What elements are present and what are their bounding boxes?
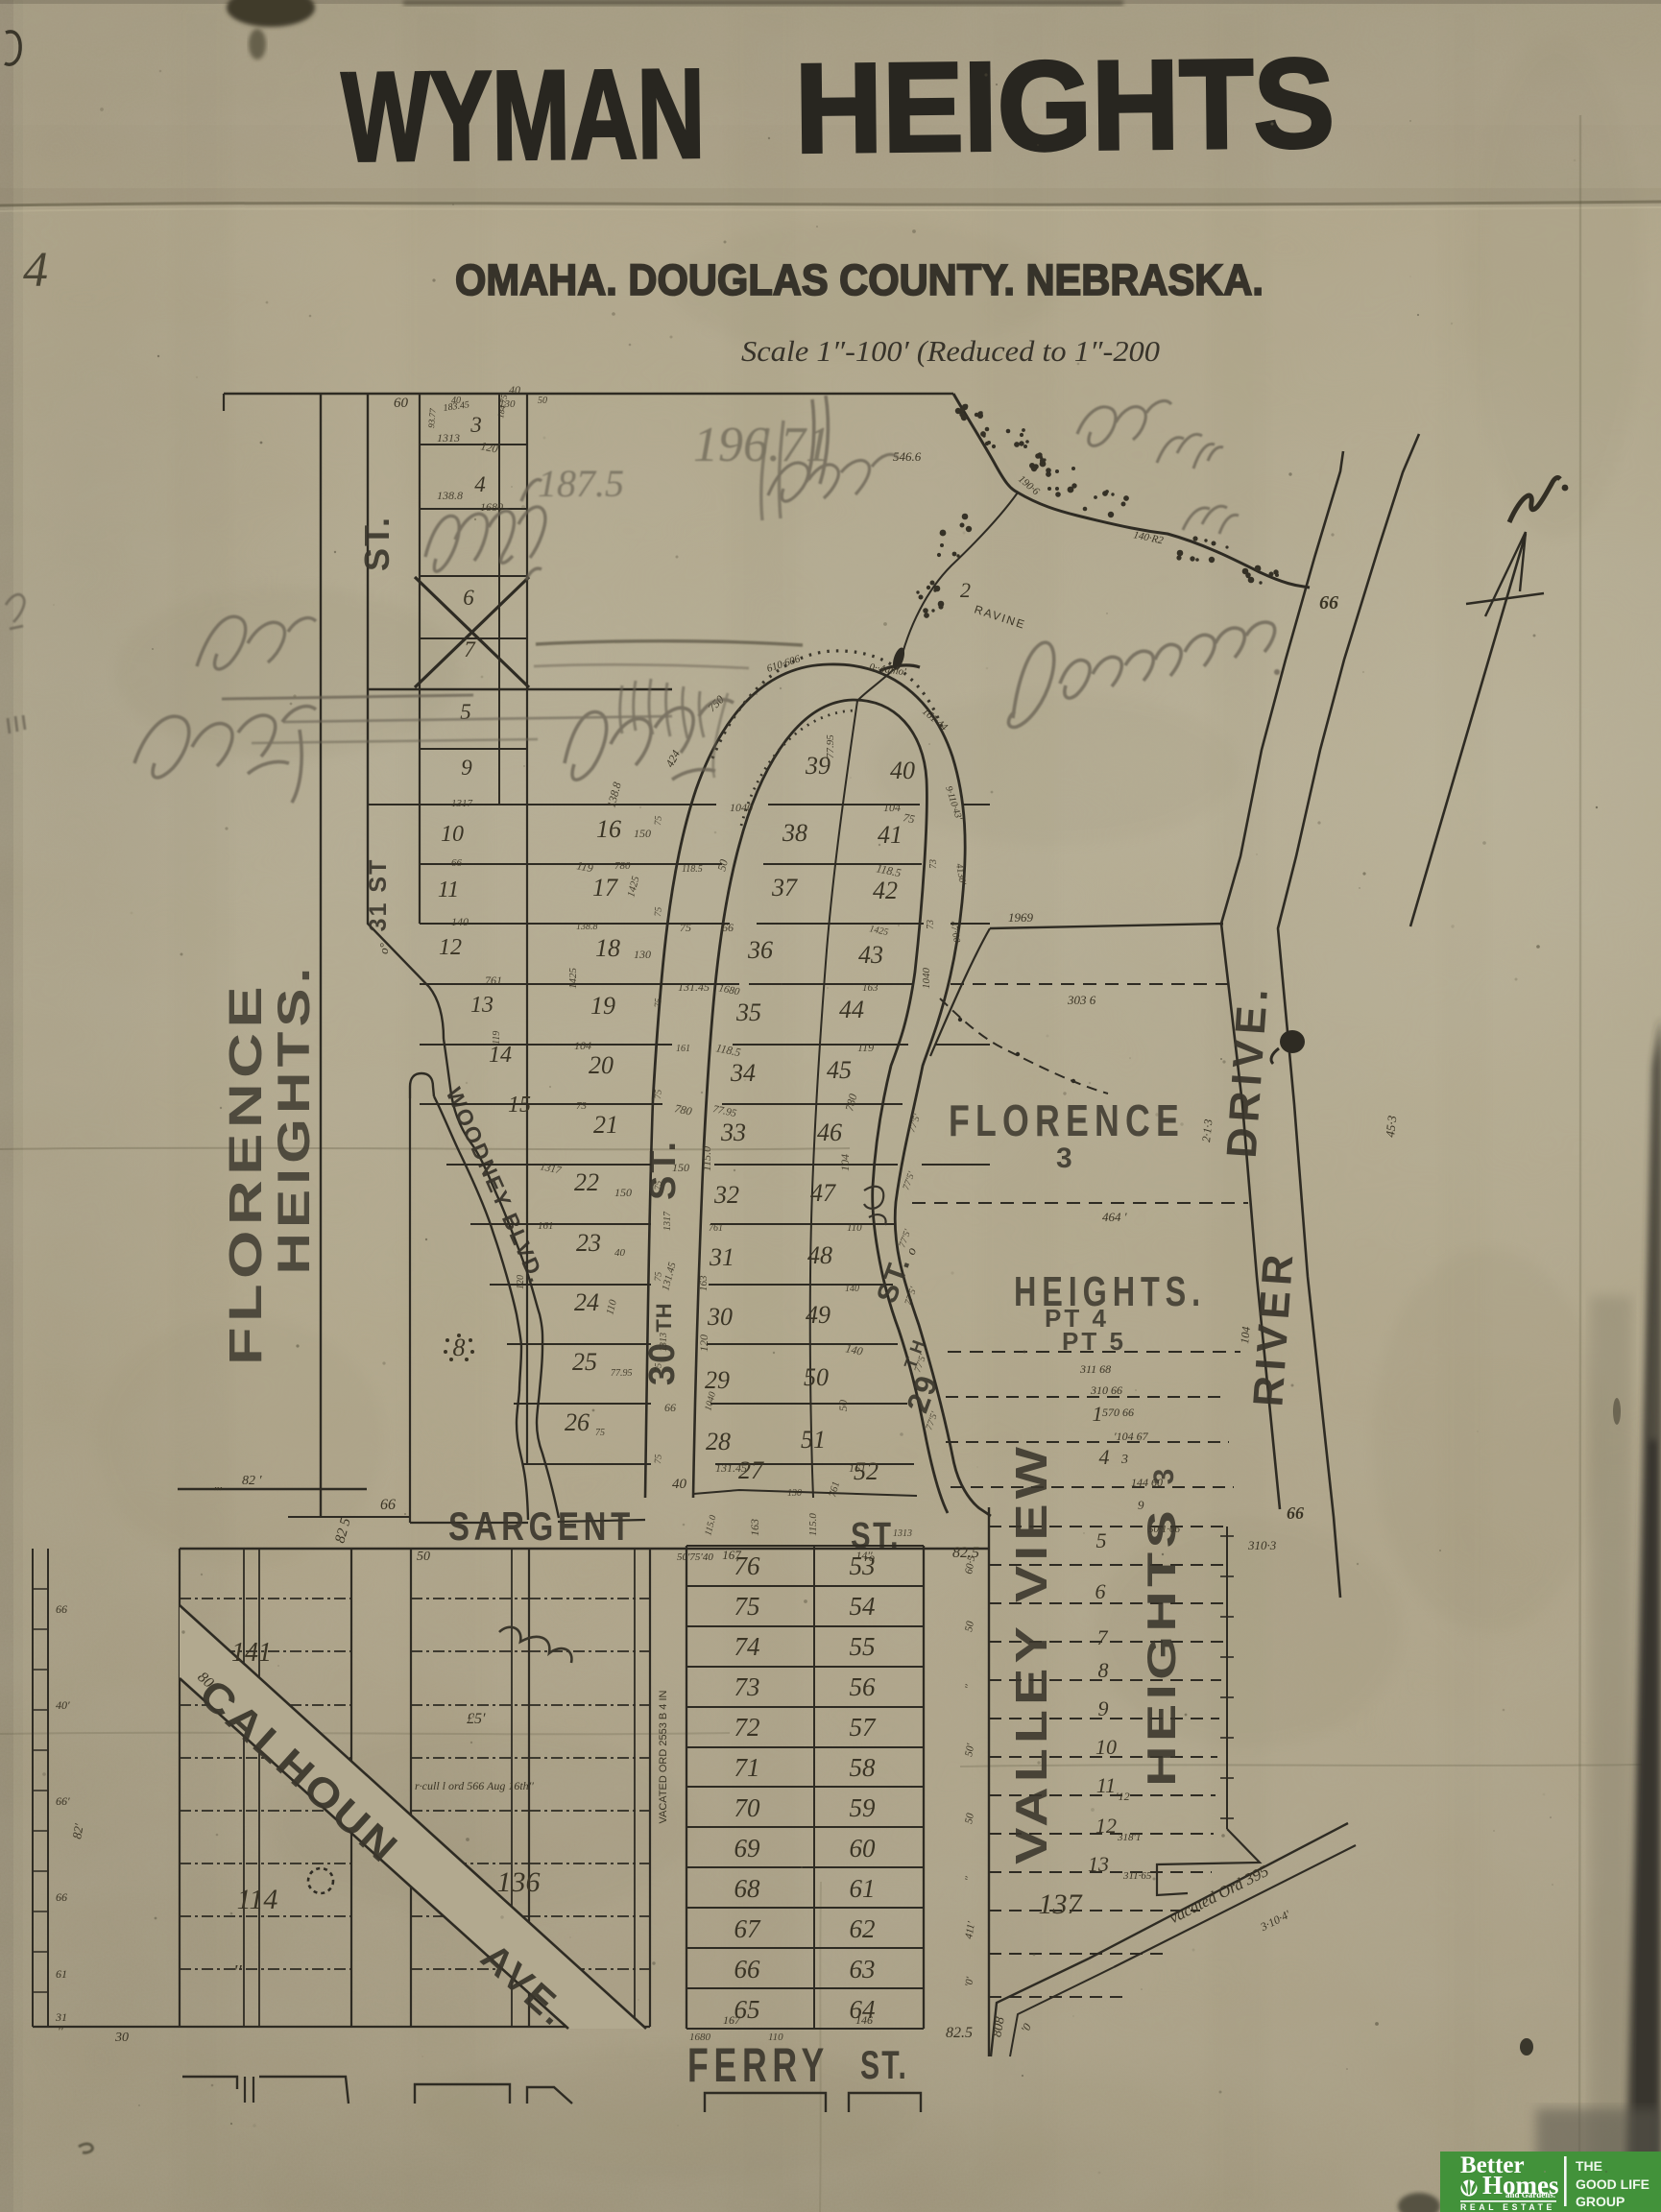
svg-text:104: 104 [838, 1154, 852, 1171]
svg-text:4: 4 [474, 472, 486, 496]
svg-text:4: 4 [1099, 1445, 1110, 1469]
svg-text:32: 32 [713, 1181, 739, 1209]
svg-text:73: 73 [928, 859, 939, 869]
svg-text:73: 73 [734, 1672, 760, 1701]
svg-text:34: 34 [730, 1059, 756, 1087]
svg-text:TH: TH [652, 1302, 676, 1332]
svg-text:60: 60 [394, 396, 409, 411]
svg-text:GOOD LIFE: GOOD LIFE [1576, 2176, 1649, 2192]
svg-text:19: 19 [590, 992, 615, 1020]
svg-text:75: 75 [653, 906, 664, 917]
svg-text:75: 75 [653, 1362, 664, 1373]
svg-text:140: 140 [451, 915, 469, 928]
svg-text:1313: 1313 [437, 431, 460, 445]
svg-text:137: 137 [1039, 1888, 1084, 1920]
svg-text:3: 3 [1120, 1453, 1128, 1467]
svg-text:WYMAN: WYMAN [341, 42, 706, 187]
svg-text:22: 22 [574, 1168, 599, 1196]
svg-text:161: 161 [849, 1461, 866, 1475]
svg-text:HEIGHTS.: HEIGHTS. [1014, 1268, 1206, 1315]
svg-text:20: 20 [589, 1051, 614, 1079]
svg-text:28: 28 [706, 1428, 731, 1455]
svg-text:130: 130 [634, 948, 651, 961]
svg-text:Scale 1″-100′ (Reduced to 1″-: Scale 1″-100′ (Reduced to 1″-200 [741, 334, 1161, 368]
svg-text:77.95: 77.95 [611, 1368, 633, 1379]
svg-text:5: 5 [1096, 1528, 1107, 1552]
svg-text:24: 24 [574, 1288, 599, 1316]
svg-text:163: 163 [862, 982, 879, 994]
svg-text:146: 146 [855, 2013, 873, 2027]
svg-text:69: 69 [734, 1834, 761, 1863]
svg-text:OMAHA. DOUGLAS COUNTY. NEBRASK: OMAHA. DOUGLAS COUNTY. NEBRASKA. [455, 255, 1264, 304]
svg-text:1425: 1425 [567, 968, 579, 990]
svg-text:1313: 1313 [659, 1333, 669, 1352]
svg-text:3: 3 [469, 413, 482, 437]
svg-text:119: 119 [857, 1041, 874, 1054]
svg-text:187.5: 187.5 [538, 462, 624, 505]
svg-text:58: 58 [850, 1753, 877, 1782]
svg-text:45: 45 [827, 1056, 852, 1084]
svg-text:51: 51 [801, 1426, 826, 1454]
svg-text:59: 59 [850, 1793, 877, 1822]
svg-text:761: 761 [709, 1223, 723, 1234]
svg-text:GROUP: GROUP [1576, 2194, 1625, 2209]
svg-text:45·3: 45·3 [1383, 1115, 1399, 1139]
svg-text:26: 26 [565, 1408, 590, 1436]
svg-text:163: 163 [748, 1519, 761, 1536]
svg-text:FLORENCE: FLORENCE [949, 1095, 1185, 1145]
svg-text:9: 9 [461, 756, 472, 780]
svg-text:110: 110 [847, 1222, 862, 1234]
svg-text:2·1·3: 2·1·3 [1199, 1118, 1215, 1142]
svg-text:75: 75 [595, 1428, 605, 1438]
svg-text:61: 61 [850, 1874, 876, 1903]
svg-text:21: 21 [593, 1111, 618, 1139]
svg-text:′′: ′′ [58, 2024, 63, 2038]
svg-text:50: 50 [836, 1400, 850, 1411]
svg-text:3: 3 [1148, 1463, 1180, 1485]
svg-text:33: 33 [720, 1118, 746, 1146]
svg-text:161: 161 [676, 1044, 690, 1054]
svg-text:6: 6 [463, 586, 474, 610]
svg-text:163: 163 [698, 1275, 710, 1291]
svg-text:75: 75 [734, 1592, 760, 1621]
svg-text:10: 10 [1095, 1735, 1117, 1759]
svg-text:6: 6 [1095, 1579, 1106, 1603]
svg-text:57: 57 [850, 1713, 878, 1742]
svg-text:66: 66 [664, 1401, 676, 1414]
svg-text:30: 30 [707, 1303, 733, 1331]
svg-text:75: 75 [653, 1454, 664, 1464]
svg-text:SARGENT: SARGENT [448, 1503, 635, 1549]
svg-text:61: 61 [56, 1967, 67, 1981]
svg-text:30: 30 [114, 2031, 129, 2045]
svg-text:68: 68 [734, 1874, 761, 1903]
svg-text:167: 167 [723, 2013, 741, 2027]
svg-text:66: 66 [734, 1955, 761, 1984]
svg-text:1313: 1313 [893, 1528, 912, 1539]
svg-text:40: 40 [672, 1477, 687, 1492]
svg-text:161: 161 [538, 1220, 554, 1232]
svg-text:75: 75 [653, 1271, 664, 1282]
svg-text:55: 55 [850, 1632, 876, 1661]
svg-text:REAL ESTATE: REAL ESTATE [1460, 2202, 1555, 2212]
svg-text:36: 36 [747, 936, 773, 964]
svg-text:62: 62 [850, 1914, 876, 1943]
svg-text:140: 140 [845, 1284, 859, 1294]
svg-text:1317: 1317 [662, 1211, 673, 1231]
svg-text:THE: THE [1576, 2158, 1602, 2174]
svg-text:41: 41 [878, 821, 903, 849]
svg-text:40: 40 [614, 1247, 626, 1259]
svg-text:66: 66 [722, 921, 734, 934]
svg-text:66: 66 [1287, 1503, 1304, 1523]
svg-text:70: 70 [734, 1793, 761, 1822]
svg-text:40: 40 [451, 396, 461, 406]
svg-text:23: 23 [576, 1229, 601, 1257]
svg-text:35: 35 [735, 998, 761, 1026]
svg-text:43: 43 [858, 941, 883, 969]
svg-text:67: 67 [734, 1914, 762, 1943]
svg-text:141: 141 [231, 1638, 272, 1668]
svg-text:13: 13 [1088, 1852, 1109, 1876]
svg-text:12: 12 [439, 935, 462, 960]
svg-text:66′: 66′ [56, 1794, 70, 1808]
svg-text:310·3: 310·3 [1247, 1538, 1277, 1552]
svg-text:HEIGHTS: HEIGHTS [794, 33, 1336, 180]
svg-text:29: 29 [705, 1366, 730, 1394]
svg-text:48: 48 [807, 1241, 832, 1269]
svg-text:71: 71 [734, 1753, 760, 1782]
svg-text:50: 50 [417, 1550, 430, 1564]
svg-text:138.8: 138.8 [437, 489, 463, 502]
svg-text:40: 40 [890, 757, 915, 784]
svg-text:56: 56 [850, 1672, 877, 1701]
svg-text:72: 72 [734, 1713, 760, 1742]
svg-text:38: 38 [782, 819, 807, 847]
svg-text:1040: 1040 [921, 968, 932, 990]
svg-text:13: 13 [470, 993, 493, 1018]
svg-text:PT 5: PT 5 [1062, 1327, 1126, 1356]
svg-text:7: 7 [1097, 1625, 1109, 1649]
svg-text:£5′: £5′ [467, 1711, 486, 1727]
svg-text:40′: 40′ [56, 1698, 70, 1712]
svg-text:118.5: 118.5 [682, 864, 703, 875]
svg-text:114: 114 [237, 1884, 278, 1915]
svg-text:50: 50 [804, 1363, 829, 1391]
svg-text:49: 49 [806, 1301, 830, 1329]
svg-text:r·cull l ord 566 Aug 16th′′: r·cull l ord 566 Aug 16th′′ [415, 1779, 534, 1792]
svg-text:44: 44 [839, 996, 864, 1023]
svg-text:464 ′: 464 ′ [1102, 1210, 1127, 1224]
svg-text:73: 73 [576, 1100, 588, 1112]
svg-text:9: 9 [1098, 1696, 1109, 1720]
svg-text:150: 150 [672, 1161, 689, 1174]
svg-text:761: 761 [485, 974, 502, 987]
svg-text:104: 104 [1238, 1326, 1253, 1344]
svg-text:130: 130 [499, 398, 516, 410]
svg-text:ST.: ST. [357, 516, 397, 571]
svg-text:′12: ′12 [1116, 1790, 1130, 1803]
svg-text:66: 66 [380, 1497, 396, 1513]
svg-text:50′: 50′ [963, 1743, 976, 1758]
svg-text:303 6: 303 6 [1067, 993, 1096, 1007]
svg-text:138.8: 138.8 [576, 922, 598, 932]
svg-text:3: 3 [1056, 1142, 1078, 1174]
svg-text:14′′: 14′′ [855, 1549, 873, 1562]
svg-text:310 66: 310 66 [1090, 1383, 1122, 1397]
svg-text:HEIGHTS: HEIGHTS [1139, 1506, 1184, 1787]
svg-text:11: 11 [438, 878, 459, 902]
svg-text:1969: 1969 [1008, 910, 1034, 925]
svg-text:12: 12 [1095, 1814, 1117, 1838]
svg-text:″′: ″′ [213, 1485, 223, 1500]
svg-text:VACATED ORD 2553 B 4 IN: VACATED ORD 2553 B 4 IN [658, 1690, 669, 1823]
svg-text:130: 130 [787, 1488, 802, 1499]
svg-text:50′75′40: 50′75′40 [677, 1551, 713, 1563]
svg-text:73: 73 [926, 920, 936, 929]
svg-text:18: 18 [595, 934, 620, 962]
svg-text:110: 110 [768, 2032, 783, 2043]
svg-text:16: 16 [596, 815, 621, 843]
svg-text:75: 75 [680, 921, 691, 934]
svg-text:8: 8 [453, 1334, 466, 1361]
svg-text:31: 31 [55, 2010, 67, 2024]
svg-text:31 ST: 31 ST [365, 858, 392, 932]
svg-text:74: 74 [734, 1632, 760, 1661]
svg-text:1680: 1680 [689, 2032, 711, 2043]
svg-text:115.0: 115.0 [807, 1513, 819, 1536]
svg-text:75: 75 [653, 1180, 664, 1190]
svg-text:131.45: 131.45 [715, 1461, 747, 1475]
svg-text:82 ′: 82 ′ [242, 1474, 263, 1488]
svg-text:2: 2 [960, 578, 971, 602]
svg-text:93.77: 93.77 [426, 408, 438, 429]
svg-text:63: 63 [850, 1955, 876, 1984]
svg-text:14: 14 [489, 1043, 512, 1068]
svg-text:FLORENCE: FLORENCE [221, 981, 272, 1365]
svg-text:1317: 1317 [451, 798, 473, 809]
svg-text:167: 167 [722, 1548, 741, 1562]
svg-text:1: 1 [1093, 1402, 1103, 1426]
svg-text:136: 136 [497, 1866, 541, 1898]
svg-text:40: 40 [509, 383, 520, 397]
svg-text:and Gardens.: and Gardens. [1505, 2190, 1555, 2200]
svg-text:82.5: 82.5 [946, 2025, 973, 2041]
svg-text:HEIGHTS.: HEIGHTS. [268, 963, 319, 1275]
svg-text:104: 104 [574, 1039, 591, 1052]
svg-text:115.0: 115.0 [700, 1146, 713, 1171]
svg-text:120: 120 [697, 1334, 710, 1352]
svg-text:119: 119 [492, 1031, 502, 1045]
svg-text:75: 75 [653, 815, 664, 826]
svg-text:66: 66 [1319, 592, 1338, 613]
svg-text:VALLEY VIEW: VALLEY VIEW [1006, 1442, 1056, 1864]
svg-text:50: 50 [538, 396, 547, 406]
svg-text:11: 11 [1096, 1773, 1116, 1797]
svg-text:131.45: 131.45 [678, 980, 710, 994]
svg-text:66: 66 [56, 1602, 67, 1616]
svg-text:82′: 82′ [69, 1822, 86, 1839]
svg-text:150: 150 [634, 827, 651, 840]
svg-text:54: 54 [850, 1592, 876, 1621]
svg-text:60: 60 [850, 1834, 877, 1863]
svg-text:311·65: 311·65 [1122, 1870, 1152, 1882]
svg-text:75: 75 [653, 998, 664, 1008]
svg-text:′′: ′′ [233, 1961, 242, 1983]
svg-text:42: 42 [873, 877, 898, 904]
svg-text:4: 4 [23, 243, 48, 298]
svg-text:66: 66 [56, 1890, 67, 1904]
svg-text:17: 17 [592, 874, 618, 902]
svg-text:104: 104 [883, 801, 901, 814]
svg-text:1040: 1040 [730, 801, 753, 814]
svg-text:780: 780 [614, 860, 631, 872]
svg-text:8: 8 [1098, 1658, 1109, 1682]
svg-text:FERRY: FERRY [687, 2038, 830, 2092]
svg-text:150: 150 [614, 1186, 632, 1199]
svg-text:47: 47 [810, 1179, 836, 1207]
svg-text:ST.: ST. [860, 2042, 908, 2087]
svg-text:10: 10 [441, 822, 464, 847]
svg-text:31: 31 [709, 1243, 734, 1271]
svg-text:7: 7 [464, 637, 476, 661]
svg-text:66: 66 [451, 857, 463, 869]
svg-text:75: 75 [653, 1089, 664, 1099]
svg-text:o°: o° [376, 943, 391, 954]
svg-text:77.95: 77.95 [825, 734, 836, 758]
svg-text:120: 120 [516, 1275, 526, 1289]
svg-text:311 68: 311 68 [1079, 1362, 1111, 1376]
svg-text:46: 46 [817, 1118, 842, 1146]
svg-text:570 66: 570 66 [1102, 1406, 1134, 1419]
svg-text:25: 25 [572, 1348, 597, 1376]
svg-text:′104 67: ′104 67 [1114, 1430, 1149, 1443]
svg-text:37: 37 [771, 874, 798, 902]
svg-text:318′1: 318′1 [1117, 1832, 1141, 1843]
